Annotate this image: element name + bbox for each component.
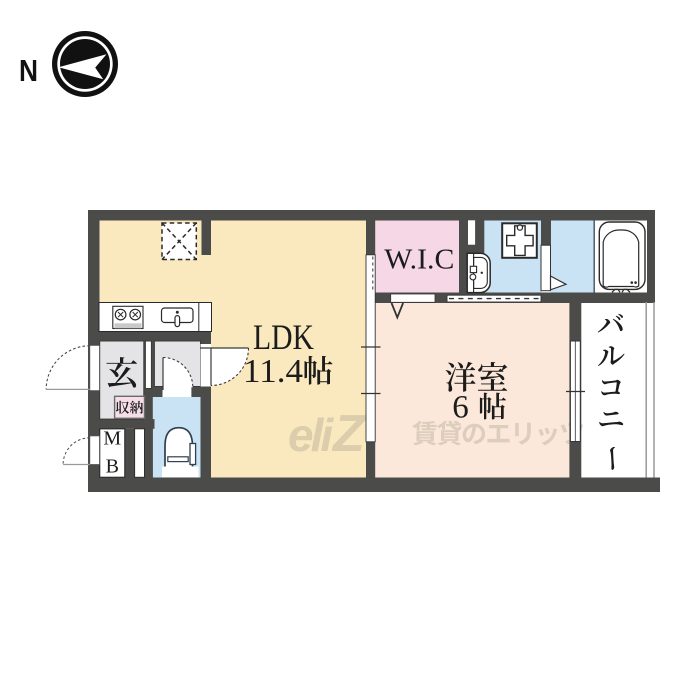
svg-text:6: 6 — [452, 390, 469, 426]
svg-text:11.4: 11.4 — [243, 353, 303, 390]
svg-text:M: M — [103, 428, 121, 450]
svg-text:eli: eli — [288, 409, 334, 461]
svg-text:W.I.C: W.I.C — [384, 245, 454, 276]
svg-text:LDK: LDK — [253, 317, 314, 357]
svg-text:B: B — [106, 456, 119, 478]
svg-text:N: N — [19, 53, 38, 88]
svg-text:Z: Z — [331, 405, 367, 463]
